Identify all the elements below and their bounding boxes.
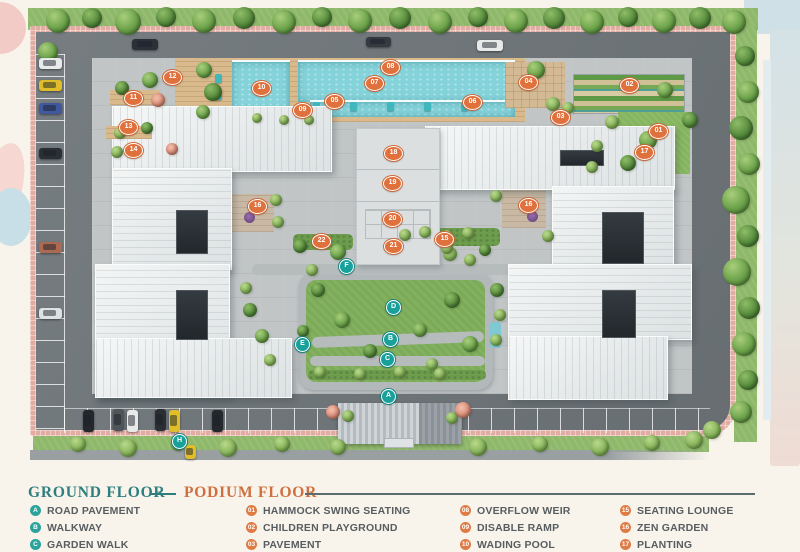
legend-badge-A: A bbox=[30, 505, 41, 516]
ground-marker-B: B bbox=[383, 332, 398, 347]
legend-badge-10: 10 bbox=[460, 539, 471, 550]
podium-marker-07: 07 bbox=[365, 76, 384, 91]
legend-column: 08OVERFLOW WEIR09DISABLE RAMP10WADING PO… bbox=[460, 502, 571, 552]
legend-item: 03PAVEMENT bbox=[246, 536, 411, 552]
marker-layer: 0102030405060708091011121314151616171819… bbox=[0, 0, 800, 480]
legend-label: HAMMOCK SWING SEATING bbox=[263, 505, 411, 517]
podium-marker-02: 02 bbox=[620, 78, 639, 93]
legend-item: 01HAMMOCK SWING SEATING bbox=[246, 502, 411, 519]
legend-item: 08OVERFLOW WEIR bbox=[460, 502, 571, 519]
ground-marker-A: A bbox=[381, 389, 396, 404]
podium-marker-18: 18 bbox=[384, 146, 403, 161]
legend-column: 01HAMMOCK SWING SEATING02CHILDREN PLAYGR… bbox=[246, 502, 411, 552]
podium-marker-14: 14 bbox=[124, 143, 143, 158]
podium-marker-12: 12 bbox=[163, 70, 182, 85]
legend-label: WADING POOL bbox=[477, 539, 555, 551]
podium-marker-08: 08 bbox=[381, 60, 400, 75]
legend-label: OVERFLOW WEIR bbox=[477, 505, 571, 517]
podium-marker-21: 21 bbox=[384, 239, 403, 254]
legend-item: 15SEATING LOUNGE bbox=[620, 502, 734, 519]
legend-badge-15: 15 bbox=[620, 505, 631, 516]
podium-marker-13: 13 bbox=[119, 120, 138, 135]
legend-label: ROAD PAVEMENT bbox=[47, 505, 140, 517]
podium-marker-19: 19 bbox=[383, 176, 402, 191]
podium-marker-20: 20 bbox=[383, 212, 402, 227]
legend-badge-16: 16 bbox=[620, 522, 631, 533]
ground-marker-E: E bbox=[295, 337, 310, 352]
legend-label: PAVEMENT bbox=[263, 539, 321, 551]
ground-marker-H: H bbox=[172, 434, 187, 449]
legend-item: 02CHILDREN PLAYGROUND bbox=[246, 519, 411, 536]
legend-badge-01: 01 bbox=[246, 505, 257, 516]
legend-rule bbox=[305, 493, 755, 495]
legend-column: 15SEATING LOUNGE16ZEN GARDEN17PLANTING bbox=[620, 502, 734, 552]
podium-marker-22: 22 bbox=[312, 234, 331, 249]
legend-badge-03: 03 bbox=[246, 539, 257, 550]
podium-marker-17: 17 bbox=[635, 145, 654, 160]
legend-dash bbox=[150, 493, 176, 495]
podium-marker-05: 05 bbox=[325, 94, 344, 109]
legend-label: PLANTING bbox=[637, 539, 692, 551]
legend-title-ground: GROUND FLOOR bbox=[28, 484, 165, 502]
podium-marker-16: 16 bbox=[519, 198, 538, 213]
legend-badge-09: 09 bbox=[460, 522, 471, 533]
page: 0102030405060708091011121314151616171819… bbox=[0, 0, 800, 552]
podium-marker-16: 16 bbox=[248, 199, 267, 214]
legend-badge-17: 17 bbox=[620, 539, 631, 550]
ground-marker-C: C bbox=[380, 352, 395, 367]
legend-item: AROAD PAVEMENT bbox=[30, 502, 140, 519]
podium-marker-04: 04 bbox=[519, 75, 538, 90]
legend-item: 16ZEN GARDEN bbox=[620, 519, 734, 536]
legend-item: CGARDEN WALK bbox=[30, 536, 140, 552]
legend-label: ZEN GARDEN bbox=[637, 522, 708, 534]
legend-item: 10WADING POOL bbox=[460, 536, 571, 552]
legend-label: WALKWAY bbox=[47, 522, 102, 534]
podium-marker-10: 10 bbox=[252, 81, 271, 96]
podium-marker-06: 06 bbox=[463, 95, 482, 110]
legend-badge-B: B bbox=[30, 522, 41, 533]
legend-label: GARDEN WALK bbox=[47, 539, 129, 551]
legend-label: CHILDREN PLAYGROUND bbox=[263, 522, 398, 534]
legend-title-podium: PODIUM FLOOR bbox=[184, 484, 317, 502]
ground-marker-F: F bbox=[339, 259, 354, 274]
podium-marker-15: 15 bbox=[435, 232, 454, 247]
legend-item: BWALKWAY bbox=[30, 519, 140, 536]
podium-marker-01: 01 bbox=[649, 124, 668, 139]
legend-badge-08: 08 bbox=[460, 505, 471, 516]
legend-item: 17PLANTING bbox=[620, 536, 734, 552]
podium-marker-09: 09 bbox=[293, 103, 312, 118]
legend-item: 09DISABLE RAMP bbox=[460, 519, 571, 536]
podium-marker-11: 11 bbox=[124, 91, 143, 106]
podium-marker-03: 03 bbox=[551, 110, 570, 125]
ground-marker-D: D bbox=[386, 300, 401, 315]
legend-column: AROAD PAVEMENTBWALKWAYCGARDEN WALK bbox=[30, 502, 140, 552]
site-plan: 0102030405060708091011121314151616171819… bbox=[0, 0, 800, 480]
legend-badge-C: C bbox=[30, 539, 41, 550]
legend-label: DISABLE RAMP bbox=[477, 522, 559, 534]
legend-label: SEATING LOUNGE bbox=[637, 505, 734, 517]
legend-badge-02: 02 bbox=[246, 522, 257, 533]
